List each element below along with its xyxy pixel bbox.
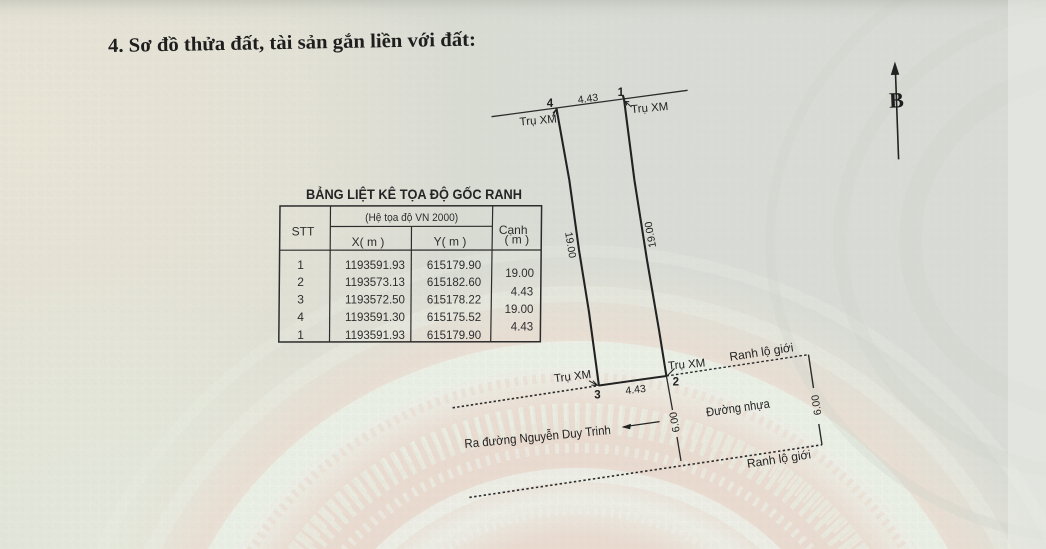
svg-text:1193591.93: 1193591.93 — [345, 260, 405, 272]
svg-text:STT: STT — [292, 224, 315, 238]
svg-text:( m ): ( m ) — [504, 233, 529, 247]
svg-text:Y( m ): Y( m ) — [434, 235, 467, 249]
svg-text:19.00: 19.00 — [505, 268, 534, 280]
svg-text:19.00: 19.00 — [505, 304, 534, 316]
svg-text:615182.60: 615182.60 — [427, 277, 481, 289]
svg-text:615179.90: 615179.90 — [427, 260, 481, 272]
svg-text:3: 3 — [594, 390, 600, 402]
svg-text:1193573.13: 1193573.13 — [345, 277, 405, 289]
svg-text:(Hệ tọa độ VN 2000): (Hệ tọa độ VN 2000) — [365, 212, 458, 224]
svg-text:X( m ): X( m ) — [352, 235, 385, 249]
svg-text:4.43: 4.43 — [511, 286, 533, 298]
svg-text:615178.22: 615178.22 — [427, 294, 481, 306]
svg-text:B: B — [889, 87, 905, 113]
svg-text:2: 2 — [297, 275, 304, 289]
svg-text:4.43: 4.43 — [625, 383, 647, 397]
svg-text:4: 4 — [547, 98, 554, 110]
svg-text:1193591.93: 1193591.93 — [345, 330, 405, 342]
svg-text:2: 2 — [673, 377, 679, 389]
svg-text:615179.90: 615179.90 — [427, 330, 481, 342]
svg-text:4: 4 — [297, 310, 304, 324]
svg-text:1: 1 — [618, 87, 625, 99]
svg-text:1193572.50: 1193572.50 — [345, 294, 405, 306]
svg-text:615175.52: 615175.52 — [427, 312, 481, 324]
svg-text:3: 3 — [297, 292, 304, 306]
svg-text:1193591.30: 1193591.30 — [345, 312, 405, 324]
svg-text:4.43: 4.43 — [511, 322, 533, 334]
svg-text:1: 1 — [297, 258, 304, 272]
svg-text:1: 1 — [297, 328, 304, 342]
svg-text:BẢNG LIỆT KÊ TỌA ĐỘ GỐC RANH: BẢNG LIỆT KÊ TỌA ĐỘ GỐC RANH — [306, 187, 522, 202]
